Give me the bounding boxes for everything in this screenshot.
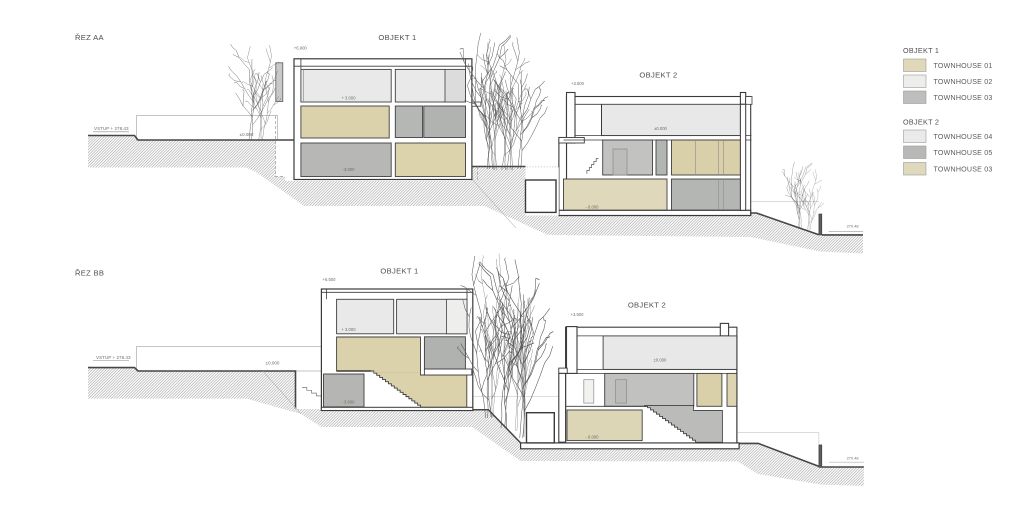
svg-text:-3.000: -3.000 (343, 167, 356, 172)
svg-text:±0.000: ±0.000 (654, 126, 667, 131)
svg-text:+3.500: +3.500 (571, 81, 585, 86)
svg-text:+6.500: +6.500 (323, 277, 337, 282)
svg-text:+ 3.000: + 3.000 (341, 327, 356, 332)
svg-text:OBJEKT 2: OBJEKT 2 (639, 71, 677, 80)
svg-text:TOWNHOUSE 04: TOWNHOUSE 04 (934, 133, 993, 141)
svg-text:OBJEKT 2: OBJEKT 2 (628, 301, 666, 310)
svg-text:- 6.000: - 6.000 (585, 205, 599, 210)
svg-text:+6.900: +6.900 (294, 46, 308, 51)
svg-text:TOWNHOUSE 05: TOWNHOUSE 05 (934, 149, 993, 157)
svg-text:ŘEZ AA: ŘEZ AA (75, 33, 104, 42)
svg-text:- 6.000: - 6.000 (585, 435, 599, 440)
svg-text:VSTUP + 278.43: VSTUP + 278.43 (96, 355, 131, 360)
svg-text:- 3.000: - 3.000 (341, 400, 355, 405)
svg-text:ŘEZ BB: ŘEZ BB (75, 269, 104, 278)
svg-text:270.48: 270.48 (847, 224, 859, 229)
svg-text:OBJEKT 1: OBJEKT 1 (380, 267, 418, 276)
svg-text:TOWNHOUSE 03: TOWNHOUSE 03 (934, 166, 993, 174)
svg-text:OBJEKT 1: OBJEKT 1 (378, 33, 416, 42)
svg-text:TOWNHOUSE 01: TOWNHOUSE 01 (934, 62, 993, 70)
svg-text:TOWNHOUSE 03: TOWNHOUSE 03 (934, 94, 993, 102)
svg-text:VSTUP + 278.43: VSTUP + 278.43 (94, 126, 129, 131)
svg-text:±0.000: ±0.000 (266, 361, 280, 366)
svg-text:OBJEKT 1: OBJEKT 1 (903, 46, 939, 55)
svg-text:±0.000: ±0.000 (654, 358, 667, 363)
svg-text:TOWNHOUSE 02: TOWNHOUSE 02 (934, 78, 993, 86)
svg-text:+ 3.000: + 3.000 (341, 96, 356, 101)
svg-text:270.48: 270.48 (847, 456, 859, 461)
svg-text:OBJEKT 2: OBJEKT 2 (903, 118, 939, 127)
svg-text:+3.500: +3.500 (571, 312, 585, 317)
